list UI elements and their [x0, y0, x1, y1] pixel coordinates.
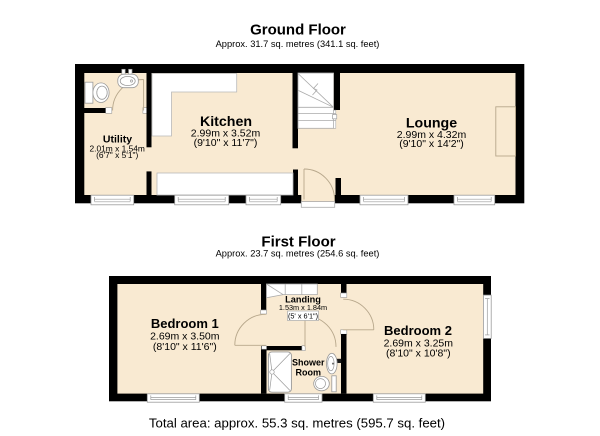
svg-text:Room: Room [296, 368, 322, 378]
svg-text:Bedroom 2: Bedroom 2 [384, 323, 452, 338]
svg-text:Shower: Shower [292, 358, 325, 368]
svg-text:Ground Floor: Ground Floor [250, 22, 346, 39]
svg-text:(6'7" x 5'1"): (6'7" x 5'1") [96, 150, 138, 160]
svg-text:Total area: approx. 55.3 sq. m: Total area: approx. 55.3 sq. metres (595… [149, 416, 445, 431]
svg-text:(8'10" x 11'6"): (8'10" x 11'6") [153, 341, 217, 353]
svg-text:Approx. 23.7 sq. metres (254.6: Approx. 23.7 sq. metres (254.6 sq. feet) [216, 249, 380, 259]
svg-text:(5' x 6'1"): (5' x 6'1") [288, 311, 318, 320]
svg-text:Approx. 31.7 sq. metres (341.1: Approx. 31.7 sq. metres (341.1 sq. feet) [216, 39, 380, 49]
svg-text:(9'10" x 11'7"): (9'10" x 11'7") [194, 137, 258, 149]
svg-text:(8'10" x 10'8"): (8'10" x 10'8") [386, 348, 451, 360]
svg-text:Bedroom 1: Bedroom 1 [151, 316, 219, 331]
svg-text:(9'10" x 14'2"): (9'10" x 14'2") [399, 138, 464, 150]
